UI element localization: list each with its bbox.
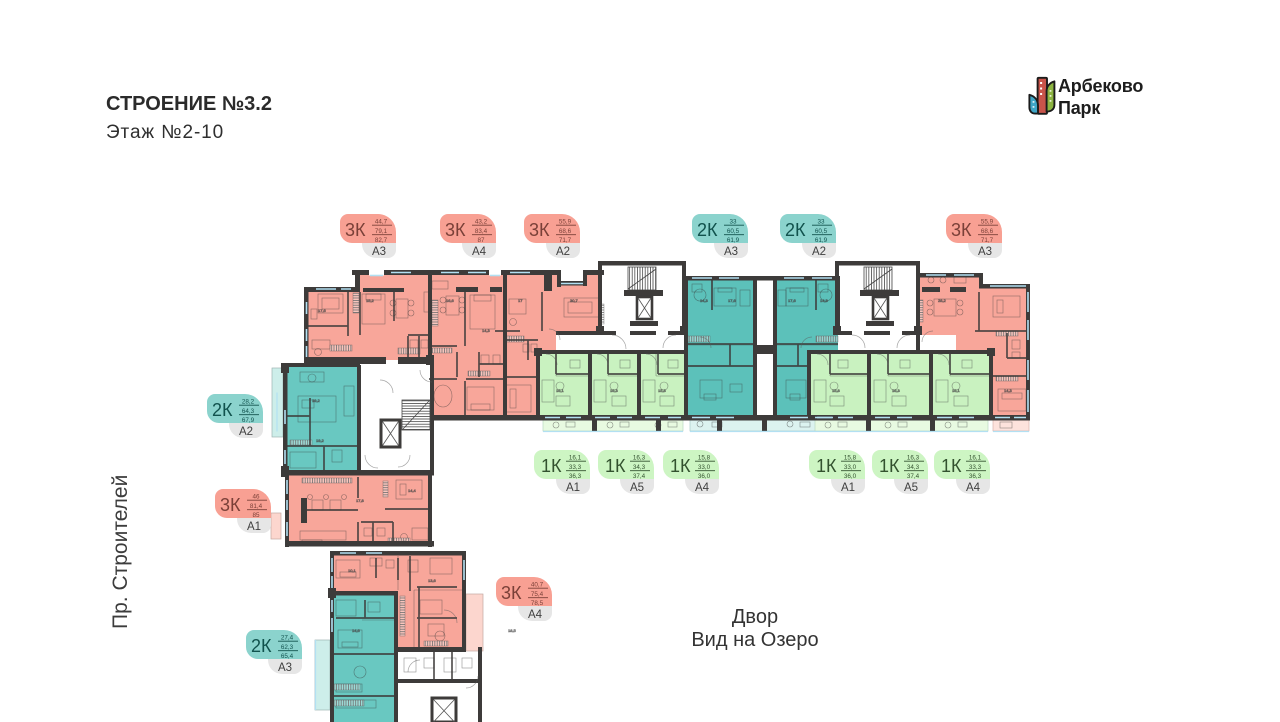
svg-text:17,6: 17,6 <box>728 298 737 303</box>
svg-text:А5: А5 <box>630 482 644 494</box>
svg-text:15,2: 15,2 <box>366 298 375 303</box>
svg-text:2К: 2К <box>697 220 718 240</box>
svg-text:10,1: 10,1 <box>348 568 357 573</box>
svg-text:30,7: 30,7 <box>570 298 579 303</box>
svg-text:17,8: 17,8 <box>356 498 365 503</box>
svg-text:15,8: 15,8 <box>658 388 667 393</box>
svg-text:А3: А3 <box>278 662 292 674</box>
svg-text:83,4: 83,4 <box>475 228 488 235</box>
svg-text:А3: А3 <box>372 246 386 258</box>
svg-text:44,7: 44,7 <box>375 219 388 226</box>
svg-text:14,3: 14,3 <box>700 298 709 303</box>
svg-text:33,3: 33,3 <box>569 464 582 471</box>
svg-text:75,4: 75,4 <box>531 591 544 598</box>
svg-text:61,9: 61,9 <box>815 237 828 244</box>
svg-text:68,6: 68,6 <box>981 228 994 235</box>
svg-text:60,5: 60,5 <box>815 228 828 235</box>
svg-text:71,7: 71,7 <box>981 237 994 244</box>
svg-text:62,3: 62,3 <box>281 644 294 651</box>
svg-text:3К: 3К <box>220 495 241 515</box>
svg-text:33: 33 <box>817 219 825 226</box>
svg-text:17,6: 17,6 <box>318 308 327 313</box>
svg-text:1К: 1К <box>879 456 900 476</box>
svg-text:А4: А4 <box>472 246 487 258</box>
svg-text:67,9: 67,9 <box>242 417 255 424</box>
svg-text:27,4: 27,4 <box>281 635 294 642</box>
svg-text:55,9: 55,9 <box>559 219 572 226</box>
svg-text:36,3: 36,3 <box>969 473 982 480</box>
svg-text:16,3: 16,3 <box>633 455 646 462</box>
svg-text:37,4: 37,4 <box>907 473 920 480</box>
svg-text:А3: А3 <box>724 246 738 258</box>
svg-text:3К: 3К <box>445 220 466 240</box>
svg-text:36,0: 36,0 <box>844 473 857 480</box>
svg-text:А2: А2 <box>239 426 253 438</box>
svg-text:13,6: 13,6 <box>428 578 437 583</box>
svg-text:2К: 2К <box>212 400 233 420</box>
svg-text:16,1: 16,1 <box>569 455 582 462</box>
svg-text:А2: А2 <box>812 246 826 258</box>
svg-text:16,1: 16,1 <box>952 388 961 393</box>
svg-text:34,3: 34,3 <box>907 464 920 471</box>
svg-text:А2: А2 <box>556 246 570 258</box>
svg-text:2К: 2К <box>785 220 806 240</box>
svg-text:61,9: 61,9 <box>727 237 740 244</box>
svg-text:28,2: 28,2 <box>938 298 947 303</box>
svg-text:60,5: 60,5 <box>727 228 740 235</box>
svg-text:46: 46 <box>252 494 260 501</box>
svg-text:43,2: 43,2 <box>475 219 488 226</box>
svg-text:19,2: 19,2 <box>312 398 321 403</box>
svg-text:2К: 2К <box>251 636 272 656</box>
svg-text:15,8: 15,8 <box>832 388 841 393</box>
svg-text:14,3: 14,3 <box>482 328 491 333</box>
svg-text:1К: 1К <box>670 456 691 476</box>
svg-text:3К: 3К <box>345 220 366 240</box>
svg-text:1К: 1К <box>816 456 837 476</box>
svg-text:17,6: 17,6 <box>788 298 797 303</box>
svg-text:А5: А5 <box>904 482 918 494</box>
svg-text:15,8: 15,8 <box>844 455 857 462</box>
svg-text:68,6: 68,6 <box>559 228 572 235</box>
svg-text:16,3: 16,3 <box>892 388 901 393</box>
svg-text:87: 87 <box>477 237 485 244</box>
svg-text:Арбеково: Арбеково <box>1058 76 1143 96</box>
svg-text:33,0: 33,0 <box>844 464 857 471</box>
svg-text:14,3: 14,3 <box>1004 388 1013 393</box>
svg-text:64,3: 64,3 <box>242 408 255 415</box>
svg-text:37,4: 37,4 <box>633 473 646 480</box>
svg-text:17: 17 <box>518 298 523 303</box>
svg-text:85: 85 <box>252 512 260 519</box>
svg-text:Парк: Парк <box>1058 98 1101 118</box>
svg-text:33: 33 <box>729 219 737 226</box>
svg-text:28,2: 28,2 <box>242 399 255 406</box>
svg-text:1К: 1К <box>605 456 626 476</box>
svg-text:16,3: 16,3 <box>610 388 619 393</box>
svg-text:40,7: 40,7 <box>531 582 544 589</box>
svg-text:82,7: 82,7 <box>375 237 388 244</box>
svg-text:78,5: 78,5 <box>531 600 544 607</box>
svg-text:16,3: 16,3 <box>907 455 920 462</box>
svg-text:А4: А4 <box>528 609 543 621</box>
svg-text:71,7: 71,7 <box>559 237 572 244</box>
svg-text:79,1: 79,1 <box>375 228 388 235</box>
svg-text:14,4: 14,4 <box>408 488 417 493</box>
svg-text:14,3: 14,3 <box>820 298 829 303</box>
svg-text:1К: 1К <box>941 456 962 476</box>
svg-text:36,3: 36,3 <box>569 473 582 480</box>
svg-text:3К: 3К <box>529 220 550 240</box>
svg-text:16,1: 16,1 <box>969 455 982 462</box>
svg-text:55,9: 55,9 <box>981 219 994 226</box>
svg-text:18,5: 18,5 <box>508 628 517 633</box>
svg-text:14,6: 14,6 <box>352 628 361 633</box>
svg-text:34,3: 34,3 <box>633 464 646 471</box>
svg-text:А1: А1 <box>566 482 580 494</box>
svg-text:33,3: 33,3 <box>969 464 982 471</box>
svg-text:16,1: 16,1 <box>556 388 565 393</box>
svg-text:А3: А3 <box>978 246 992 258</box>
svg-text:3К: 3К <box>951 220 972 240</box>
svg-text:3К: 3К <box>501 583 522 603</box>
svg-text:16,6: 16,6 <box>446 298 455 303</box>
svg-text:65,4: 65,4 <box>281 653 294 660</box>
svg-text:А4: А4 <box>966 482 981 494</box>
svg-text:15,8: 15,8 <box>698 455 711 462</box>
svg-text:36,0: 36,0 <box>698 473 711 480</box>
svg-text:А4: А4 <box>695 482 710 494</box>
svg-text:19,2: 19,2 <box>316 438 325 443</box>
svg-text:А1: А1 <box>247 521 261 533</box>
svg-text:33,0: 33,0 <box>698 464 711 471</box>
svg-text:81,4: 81,4 <box>250 503 263 510</box>
svg-text:А1: А1 <box>841 482 855 494</box>
svg-text:1К: 1К <box>541 456 562 476</box>
